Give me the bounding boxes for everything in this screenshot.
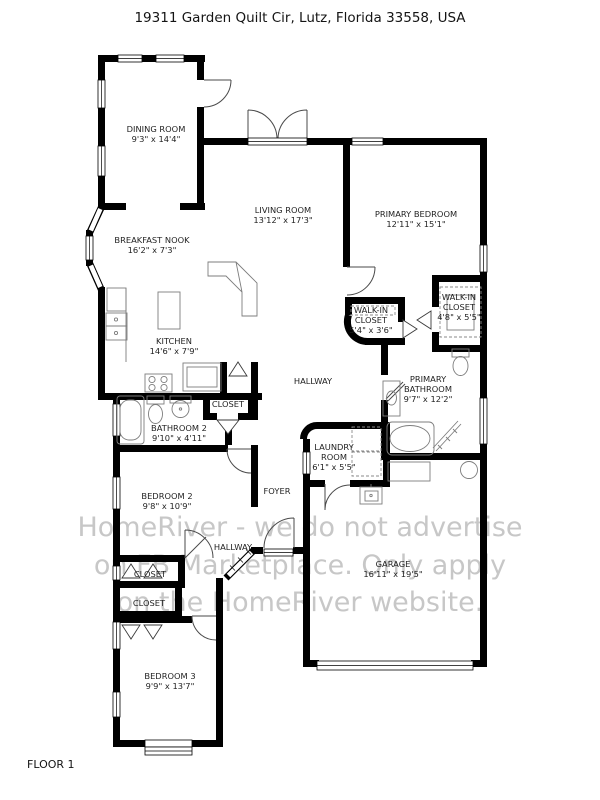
room-label-hallway-2: HALLWAY bbox=[214, 542, 253, 552]
room-label-garage: GARAGE bbox=[376, 559, 411, 569]
room-label-bedroom-2: BEDROOM 2 bbox=[141, 491, 192, 501]
room-label-bathroom-2-line2: 9'10" x 4'11" bbox=[152, 433, 206, 443]
kitchen-sink bbox=[106, 313, 127, 326]
room-label-walk-in-closet-2: WALK-IN bbox=[442, 292, 476, 302]
room-label-foyer: FOYER bbox=[264, 486, 291, 496]
kitchen-island bbox=[158, 292, 180, 329]
room-label-walk-in-closet-2-line3: 4'8" x 5'5" bbox=[437, 312, 481, 322]
room-label-closet-hall: CLOSET bbox=[212, 399, 245, 409]
tub-frame bbox=[387, 422, 434, 455]
room-label-breakfast-nook-line2: 16'2" x 7'3" bbox=[128, 245, 177, 255]
room-label-walk-in-closet-2-line2: CLOSET bbox=[443, 302, 476, 312]
room-labels: DINING ROOM9'3" x 14'4"LIVING ROOM13'12"… bbox=[114, 124, 481, 691]
primary-tub bbox=[390, 426, 430, 452]
room-label-walk-in-closet-1-line2: CLOSET bbox=[355, 315, 388, 325]
workbench bbox=[388, 462, 430, 481]
utility-sink bbox=[360, 487, 382, 504]
room-label-primary-bedroom: PRIMARY BEDROOM bbox=[375, 209, 457, 219]
floor-label: FLOOR 1 bbox=[27, 758, 75, 771]
bathtub-2 bbox=[117, 396, 144, 444]
fridge bbox=[107, 288, 126, 311]
room-label-bedroom-2-line2: 9'8" x 10'9" bbox=[143, 501, 192, 511]
room-label-hallway: HALLWAY bbox=[294, 376, 333, 386]
room-label-primary-bathroom-line3: 9'7" x 12'2" bbox=[404, 394, 453, 404]
room-label-dining-room-line2: 9'3" x 14'4" bbox=[132, 134, 181, 144]
room-label-primary-bedroom-line2: 12'11" x 15'1" bbox=[386, 219, 446, 229]
room-label-laundry-room: LAUNDRY bbox=[314, 442, 354, 452]
windows bbox=[86, 55, 487, 755]
room-label-closet-2: CLOSET bbox=[133, 598, 166, 608]
room-label-laundry-room-line3: 6'1" x 5'5" bbox=[312, 462, 356, 472]
room-label-closet-1: CLOSET bbox=[134, 569, 167, 579]
room-label-walk-in-closet-1: WALK-IN bbox=[354, 305, 388, 315]
water-heater bbox=[461, 462, 478, 479]
room-label-garage-line2: 16'11" x 19'5" bbox=[363, 569, 423, 579]
address-title: 19311 Garden Quilt Cir, Lutz, Florida 33… bbox=[0, 10, 600, 26]
room-label-bathroom-2: BATHROOM 2 bbox=[151, 423, 207, 433]
room-label-kitchen: KITCHEN bbox=[156, 336, 192, 346]
floor-plan: DINING ROOM9'3" x 14'4"LIVING ROOM13'12"… bbox=[0, 0, 600, 800]
room-label-breakfast-nook: BREAKFAST NOOK bbox=[114, 235, 190, 245]
room-label-primary-bathroom-line2: BATHROOM bbox=[404, 384, 452, 394]
shower-glass bbox=[433, 421, 461, 451]
dryer bbox=[352, 452, 381, 476]
room-label-living-room: LIVING ROOM bbox=[255, 205, 311, 215]
room-label-living-room-line2: 13'12" x 17'3" bbox=[253, 215, 313, 225]
room-label-dining-room: DINING ROOM bbox=[127, 124, 186, 134]
room-label-primary-bathroom: PRIMARY bbox=[410, 374, 447, 384]
room-label-bedroom-3-line2: 9'9" x 13'7" bbox=[146, 681, 195, 691]
room-label-kitchen-line2: 14'6" x 7'9" bbox=[150, 346, 199, 356]
room-label-laundry-room-line2: ROOM bbox=[321, 452, 347, 462]
washer bbox=[352, 427, 381, 451]
room-label-walk-in-closet-1-line3: 5'4" x 3'6" bbox=[349, 325, 393, 335]
room-label-bedroom-3: BEDROOM 3 bbox=[144, 671, 195, 681]
sofa bbox=[208, 262, 257, 316]
